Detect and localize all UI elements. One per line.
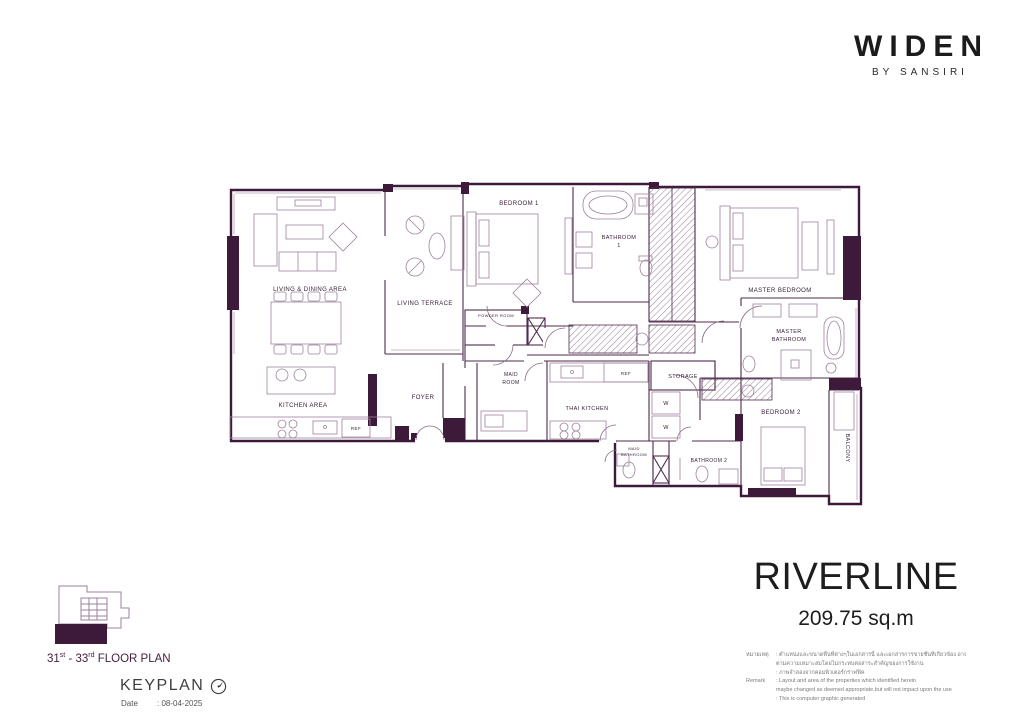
remark-spacer-4 [746,695,773,704]
remark-en-line2: maybe changed as deemed appropriate,but … [776,686,966,695]
floor-num-end: 33 [75,653,88,665]
date-row: Date : 08-04-2025 [121,699,202,708]
brand-wordmark: WIDEN [854,30,989,64]
remark-thai-label: หมายเหตุ [746,651,773,660]
room-label-bathroom-1-line1: BATHROOM [602,235,637,241]
room-label-master-bathroom-line2: BATHROOM [772,337,807,343]
room-label-maid-bathroom-line1: MAID [628,446,640,451]
label-ref-kitchen: REF [351,426,361,431]
room-label-powder-room: POWDER ROOM [478,313,514,318]
floor-separator: - [65,653,75,665]
remark-thai-line2: ตามความเหมาะสมโดยไม่กระทบต่อสาระสำคัญของ… [776,660,966,669]
room-label-bedroom-2: BEDROOM 2 [761,410,801,416]
floor-label-suffix: FLOOR PLAN [95,653,171,665]
date-label: Date [121,699,157,708]
label-washer-2: W [663,425,669,431]
floor-plan-container: LIVING & DINING AREA LIVING TERRACE BEDR… [225,178,865,508]
room-label-storage: STORAGE [668,374,698,380]
room-label-maid-room-line1: MAID [504,372,518,378]
compass-icon [210,678,227,695]
keyplan-row: KEYPLAN [120,677,227,695]
title-block: RIVERLINE 209.75 sq.m หมายเหตุ : ตำแหน่ง… [746,556,966,704]
keyplan-building-outline [59,586,129,628]
room-label-maid-room-line2: ROOM [502,380,519,386]
floor-plan-drawing: LIVING & DINING AREA LIVING TERRACE BEDR… [225,178,865,508]
floor-plan-page: WIDEN BY SANSIRI [0,0,1024,724]
floor-range-label: 31st - 33rd FLOOR PLAN [47,652,171,665]
label-washer-1: W [663,401,669,407]
keyplan-label: KEYPLAN [120,677,204,695]
date-value: : 08-04-2025 [157,699,202,708]
keyplan-unit-highlight [55,624,107,644]
project-name: RIVERLINE [746,556,966,599]
remark-spacer-3 [746,686,773,695]
brand-logo: WIDEN BY SANSIRI [854,30,982,78]
remark-spacer-1 [746,660,773,669]
room-label-thai-kitchen: THAI KITCHEN [566,406,609,412]
remark-en-label: Remark [746,677,773,686]
label-ref-thai-kitchen: REF [621,371,631,376]
room-label-bathroom-2: BATHROOM 2 [691,458,728,464]
keyplan-drawing [45,582,157,650]
remark-en-line3: : This is computer graphic generated [776,695,966,704]
room-label-kitchen-area: KITCHEN AREA [279,403,328,409]
floor-num-start: 31 [47,653,60,665]
room-label-master-bathroom-line1: MASTER [776,329,801,335]
room-label-bathroom-1-line2: 1 [617,243,620,249]
remark-spacer-2 [746,669,773,678]
remark-thai-line3: : ภาพจำลองจากคอมพิวเตอร์กราฟฟิค [776,669,966,678]
remark-thai-line1: : ตำแหน่งและขนาดพื้นที่ต่างๆในเอกสารนี้ … [776,651,966,660]
brand-byline: BY SANSIRI [854,67,986,78]
room-label-master-bedroom: MASTER BEDROOM [748,288,811,294]
unit-area: 209.75 sq.m [746,607,966,631]
room-label-balcony: BALCONY [844,433,850,462]
room-label-bedroom-1: BEDROOM 1 [499,201,539,207]
room-label-living-dining: LIVING & DINING AREA [273,287,347,293]
room-label-foyer: FOYER [412,395,435,401]
remark-block: หมายเหตุ : ตำแหน่งและขนาดพื้นที่ต่างๆในเ… [746,651,966,704]
remark-en-line1: : Layout and area of the properties whic… [776,677,966,686]
room-label-maid-bathroom-line2: BATHROOM [621,452,647,457]
room-label-living-terrace: LIVING TERRACE [397,301,453,307]
